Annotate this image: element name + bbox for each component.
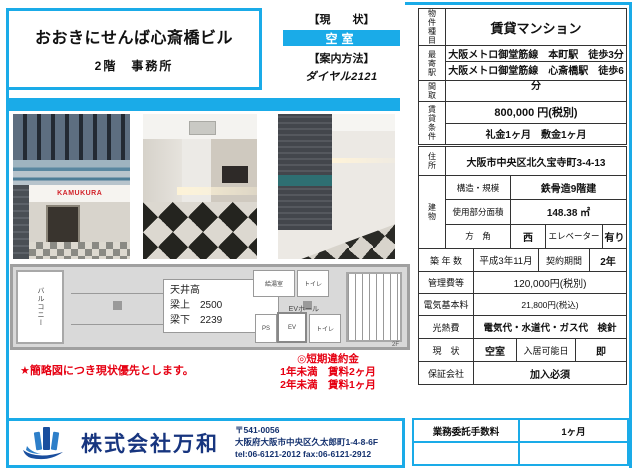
area-value: 148.38 ㎡ <box>511 200 626 223</box>
guide-method-label: 【案内方法】 <box>309 50 375 66</box>
table-row-stations: 最寄駅 大阪メトロ御堂筋線 本町駅 徒歩3分 大阪メトロ御堂筋線 心斎橋駅 徒歩… <box>419 45 626 80</box>
structure-label: 構造・規模 <box>446 176 511 199</box>
tiled-column <box>278 114 332 230</box>
guide-method-value: ダイヤル2121 <box>305 68 377 84</box>
table-row-current-status: 現 状 空室 入居可能日 即 <box>419 338 626 361</box>
status-block: 【現 状】 空室 【案内方法】 ダイヤル2121 <box>283 8 400 88</box>
table-row-age: 築 年 数 平成3年11月 契約期間 2年 <box>419 248 626 271</box>
table-row-management-fee: 管理費等 120,000円(税別) <box>419 271 626 293</box>
checkered-floor <box>143 202 257 259</box>
commission-empty-cell <box>414 443 520 464</box>
table-row-guarantor: 保証会社 加入必須 <box>419 361 626 384</box>
property-detail-table: 住所 大阪市中央区北久宝寺町3-4-13 建物 構造・規模 鉄骨造9階建 使用部… <box>418 146 627 385</box>
floor-and-use: 2階 事務所 <box>95 57 174 74</box>
balcony-room: バルコニー <box>16 270 64 344</box>
table-row-address: 住所 大阪市中央区北久宝寺町3-4-13 <box>419 147 626 175</box>
building-name: おおきにせんば心斎橋ビル <box>35 24 233 48</box>
corridor-ceiling <box>332 114 395 131</box>
top-frame-line <box>405 2 632 5</box>
utilities-value: 電気代・水道代・ガス代 検針 <box>474 316 626 338</box>
company-footer: 株式会社万和 〒541-0056 大阪府大阪市中央区久太郎町1-4-8-6F t… <box>6 418 405 468</box>
company-address-block: 〒541-0056 大阪府大阪市中央区久太郎町1-4-8-6F tel:06-6… <box>235 425 378 461</box>
table-row-rent: 賃貸条件 800,000 円(税別) 礼金1ヶ月 敷金1ヶ月 <box>419 101 626 144</box>
table-row-layout: 間取 <box>419 80 626 101</box>
commission-row: 業務委託手数料 1ヶ月 <box>414 420 627 443</box>
corridor-light-strip <box>332 158 395 164</box>
move-in-date-value: 即 <box>576 339 626 361</box>
table-row-utilities: 光熱費 電気代・水道代・ガス代 検針 <box>419 315 626 338</box>
building-label: 建物 <box>419 176 446 248</box>
company-tel-fax: tel:06-6121-2012 fax:06-6121-2912 <box>235 449 378 461</box>
pipe-space-room: PS <box>255 314 277 343</box>
elevator-room: EV <box>277 312 307 343</box>
postal-code: 〒541-0056 <box>235 425 378 437</box>
ceiling-vent <box>189 121 216 135</box>
photo-building-exterior: KAMUKURA <box>13 114 130 259</box>
current-status-row-value: 空室 <box>474 339 517 361</box>
commission-empty-row <box>414 443 627 464</box>
area-label: 使用部分面積 <box>446 200 511 223</box>
beam-above: 梁上 2500 <box>170 298 272 313</box>
company-logo-icon <box>21 424 67 462</box>
penalty-line-1: 1年未満 賃料2ヶ月 <box>252 366 404 379</box>
photo-corridor <box>278 114 395 259</box>
photo-entrance-hall <box>143 114 257 259</box>
layout-value <box>446 81 626 101</box>
table-row-building: 建物 構造・規模 鉄骨造9階建 使用部分面積 148.38 ㎡ 方 角 西 エレ… <box>419 175 626 248</box>
arcade-ceiling <box>13 114 130 160</box>
commission-table: 業務委託手数料 1ヶ月 <box>412 418 629 466</box>
table-row-property-type: 物件種目 賃貸マンション <box>419 9 626 45</box>
floor-number-label: 2F <box>392 342 399 348</box>
elevator-value: 有り <box>603 225 626 248</box>
property-type-value: 賃貸マンション <box>446 9 626 45</box>
direction-label: 方 角 <box>446 225 511 248</box>
toilet-room-bottom: トイレ <box>309 314 341 343</box>
kitchen-room: 給湯室 <box>253 270 295 297</box>
wall-light-strip <box>177 187 257 196</box>
section-divider-bar <box>6 98 400 111</box>
elevator-label: エレベーター <box>546 225 603 248</box>
company-name: 株式会社万和 <box>81 428 219 458</box>
table-row-electric-base: 電気基本料 21,800円(税込) <box>419 293 626 315</box>
address-label: 住所 <box>419 147 446 175</box>
simplified-plan-note: ★簡略図につき現状優先とします。 <box>20 362 194 378</box>
layout-label: 間取 <box>419 81 446 101</box>
property-type-label: 物件種目 <box>419 9 446 45</box>
rent-conditions-label: 賃貸条件 <box>419 102 446 144</box>
hall-left-wall <box>143 139 182 203</box>
utilities-label: 光熱費 <box>419 316 474 338</box>
current-status-value: 空室 <box>283 30 400 46</box>
move-in-date-label: 入居可能日 <box>517 339 576 361</box>
building-age-value: 平成3年11月 <box>474 249 539 271</box>
structure-value: 鉄骨造9階建 <box>511 176 626 199</box>
storefront-sign: KAMUKURA <box>29 185 130 202</box>
balcony-label: バルコニー <box>35 287 45 327</box>
address-value: 大阪市中央区北久宝寺町3-4-13 <box>446 147 626 175</box>
contract-period-label: 契約期間 <box>539 249 590 271</box>
station-line-1: 大阪メトロ御堂筋線 本町駅 徒歩3分 <box>446 46 626 61</box>
building-age-label: 築 年 数 <box>419 249 474 271</box>
electric-base-label: 電気基本料 <box>419 294 474 315</box>
toilet-room-top: トイレ <box>297 270 329 297</box>
management-fee-value: 120,000円(税別) <box>474 272 626 293</box>
electric-base-value: 21,800円(税込) <box>474 294 626 315</box>
penalty-title: ◎短期違約金 <box>252 353 404 366</box>
teal-tile-band <box>278 175 332 187</box>
contract-period-value: 2年 <box>590 249 626 271</box>
property-summary-table: 物件種目 賃貸マンション 最寄駅 大阪メトロ御堂筋線 本町駅 徒歩3分 大阪メト… <box>418 8 627 145</box>
floor-plan: バルコニー 天井高 梁上 2500 梁下 2239 給湯室 トイレ EVホール … <box>10 264 410 350</box>
staircase <box>346 272 402 342</box>
station-label: 最寄駅 <box>419 46 446 80</box>
management-fee-label: 管理費等 <box>419 272 474 293</box>
rent-value: 800,000 円(税別) <box>446 102 626 123</box>
storefront-sign-text: KAMUKURA <box>57 190 102 197</box>
pillar <box>113 301 122 310</box>
key-money-deposit: 礼金1ヶ月 敷金1ヶ月 <box>446 124 626 145</box>
current-status-label: 【現 状】 <box>309 11 375 27</box>
right-frame-line <box>629 2 632 468</box>
guarantor-value: 加入必須 <box>474 362 626 384</box>
entrance-door <box>46 205 80 245</box>
direction-value: 西 <box>511 225 546 248</box>
building-facade <box>13 160 130 185</box>
mailbox-panel <box>222 166 248 183</box>
short-term-penalty-note: ◎短期違約金 1年未満 賃料2ヶ月 2年未満 賃料1ヶ月 <box>252 353 404 392</box>
penalty-line-2: 2年未満 賃料1ヶ月 <box>252 379 404 392</box>
guarantor-label: 保証会社 <box>419 362 474 384</box>
commission-value: 1ヶ月 <box>520 420 627 441</box>
checkered-pavement <box>29 242 130 259</box>
current-status-row-label: 現 状 <box>419 339 474 361</box>
commission-label: 業務委託手数料 <box>414 420 520 441</box>
company-address: 大阪府大阪市中央区久太郎町1-4-8-6F <box>235 437 378 449</box>
building-title-box: おおきにせんば心斎橋ビル 2階 事務所 <box>6 8 262 90</box>
